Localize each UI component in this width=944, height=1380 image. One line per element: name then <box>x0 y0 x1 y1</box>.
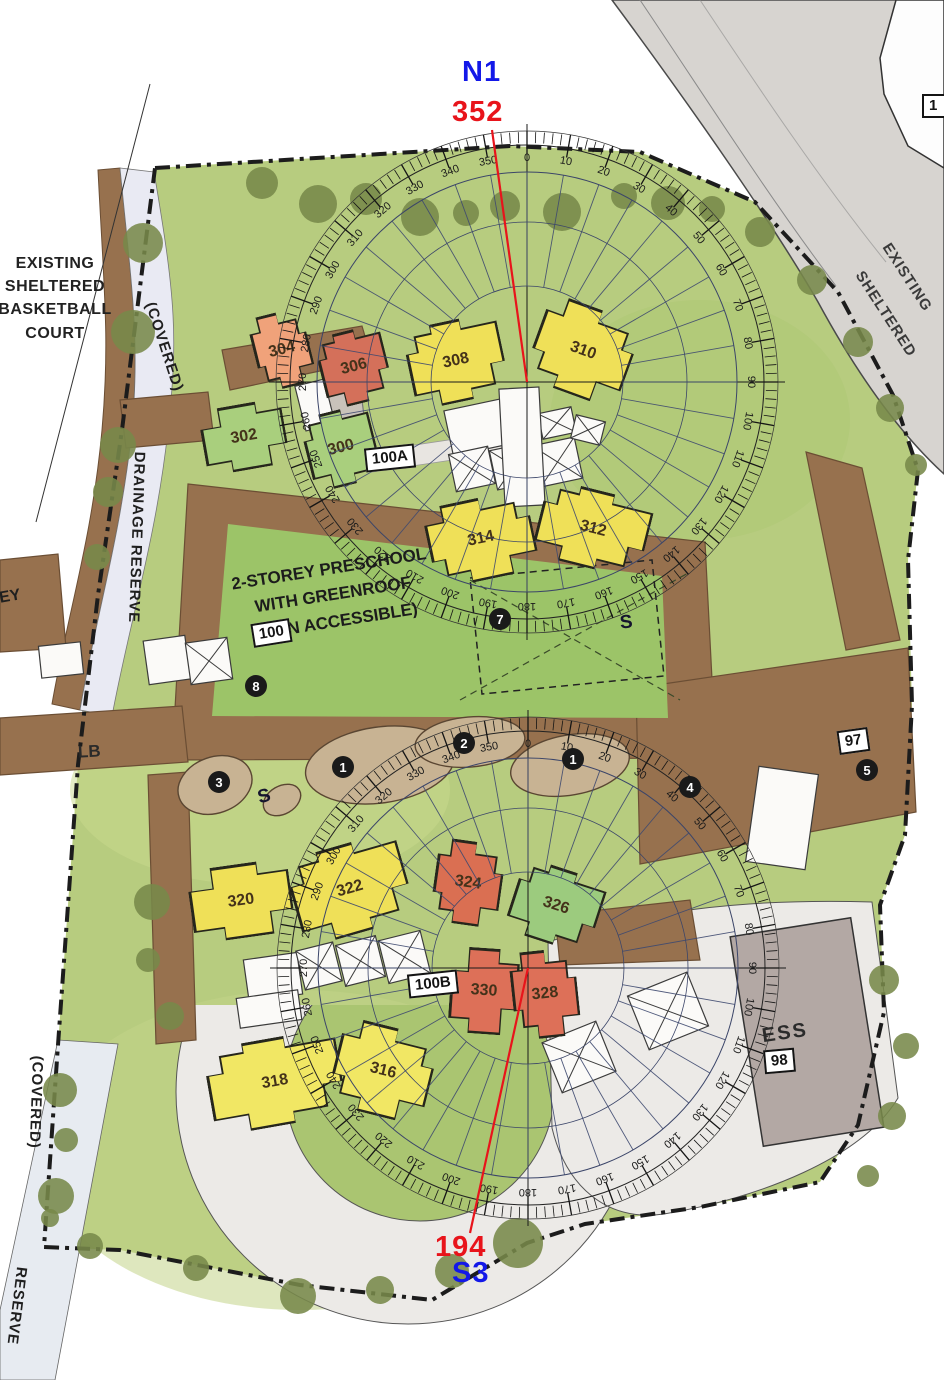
marker-5: 5 <box>856 759 878 781</box>
marker-1b: 1 <box>562 748 584 770</box>
edge-text-fragment: EY <box>0 586 22 607</box>
south-zone-label: S3 <box>452 1257 489 1290</box>
s-marker: S <box>255 785 273 810</box>
marker-4: 4 <box>679 776 701 798</box>
marker-1: 1 <box>332 756 354 778</box>
block-label-97: 97 <box>836 727 870 755</box>
drainage-reserve-label: DRAINAGE RESERVE <box>125 451 148 623</box>
north-bearing-label: 352 <box>452 96 503 129</box>
court-line: EXISTING <box>0 252 165 275</box>
preschool-label: 2-STOREY PRESCHOOL WITH GREENROOF (NON A… <box>154 529 512 662</box>
marker-8: 8 <box>245 675 267 697</box>
site-plan: 304 306 308 310 302 300 314 312 320 322 … <box>0 0 944 1380</box>
s-marker: S <box>619 611 634 634</box>
court-line: BASKETBALL <box>0 298 165 321</box>
block-label-100B: 100B <box>407 969 459 998</box>
lb-label: LB <box>77 741 101 762</box>
marker-3: 3 <box>208 771 230 793</box>
labels-layer: EXISTING SHELTERED BASKETBALL COURT 2-ST… <box>0 0 944 1380</box>
block-label-corner: 1 <box>922 94 944 118</box>
covered-label-bottom: (COVERED) <box>26 1055 46 1149</box>
block-label-100: 100 <box>250 618 292 648</box>
marker-7: 7 <box>489 608 511 630</box>
ess-label: ESS <box>761 1019 810 1048</box>
court-line: COURT <box>0 322 165 345</box>
reserve-label-bottom: RESERVE <box>4 1266 30 1346</box>
basketball-court-label: EXISTING SHELTERED BASKETBALL COURT <box>0 252 165 345</box>
block-label-98: 98 <box>763 1048 796 1075</box>
court-line: SHELTERED <box>0 275 165 298</box>
block-label-100A: 100A <box>364 443 416 472</box>
marker-2: 2 <box>453 732 475 754</box>
north-zone-label: N1 <box>462 56 501 89</box>
